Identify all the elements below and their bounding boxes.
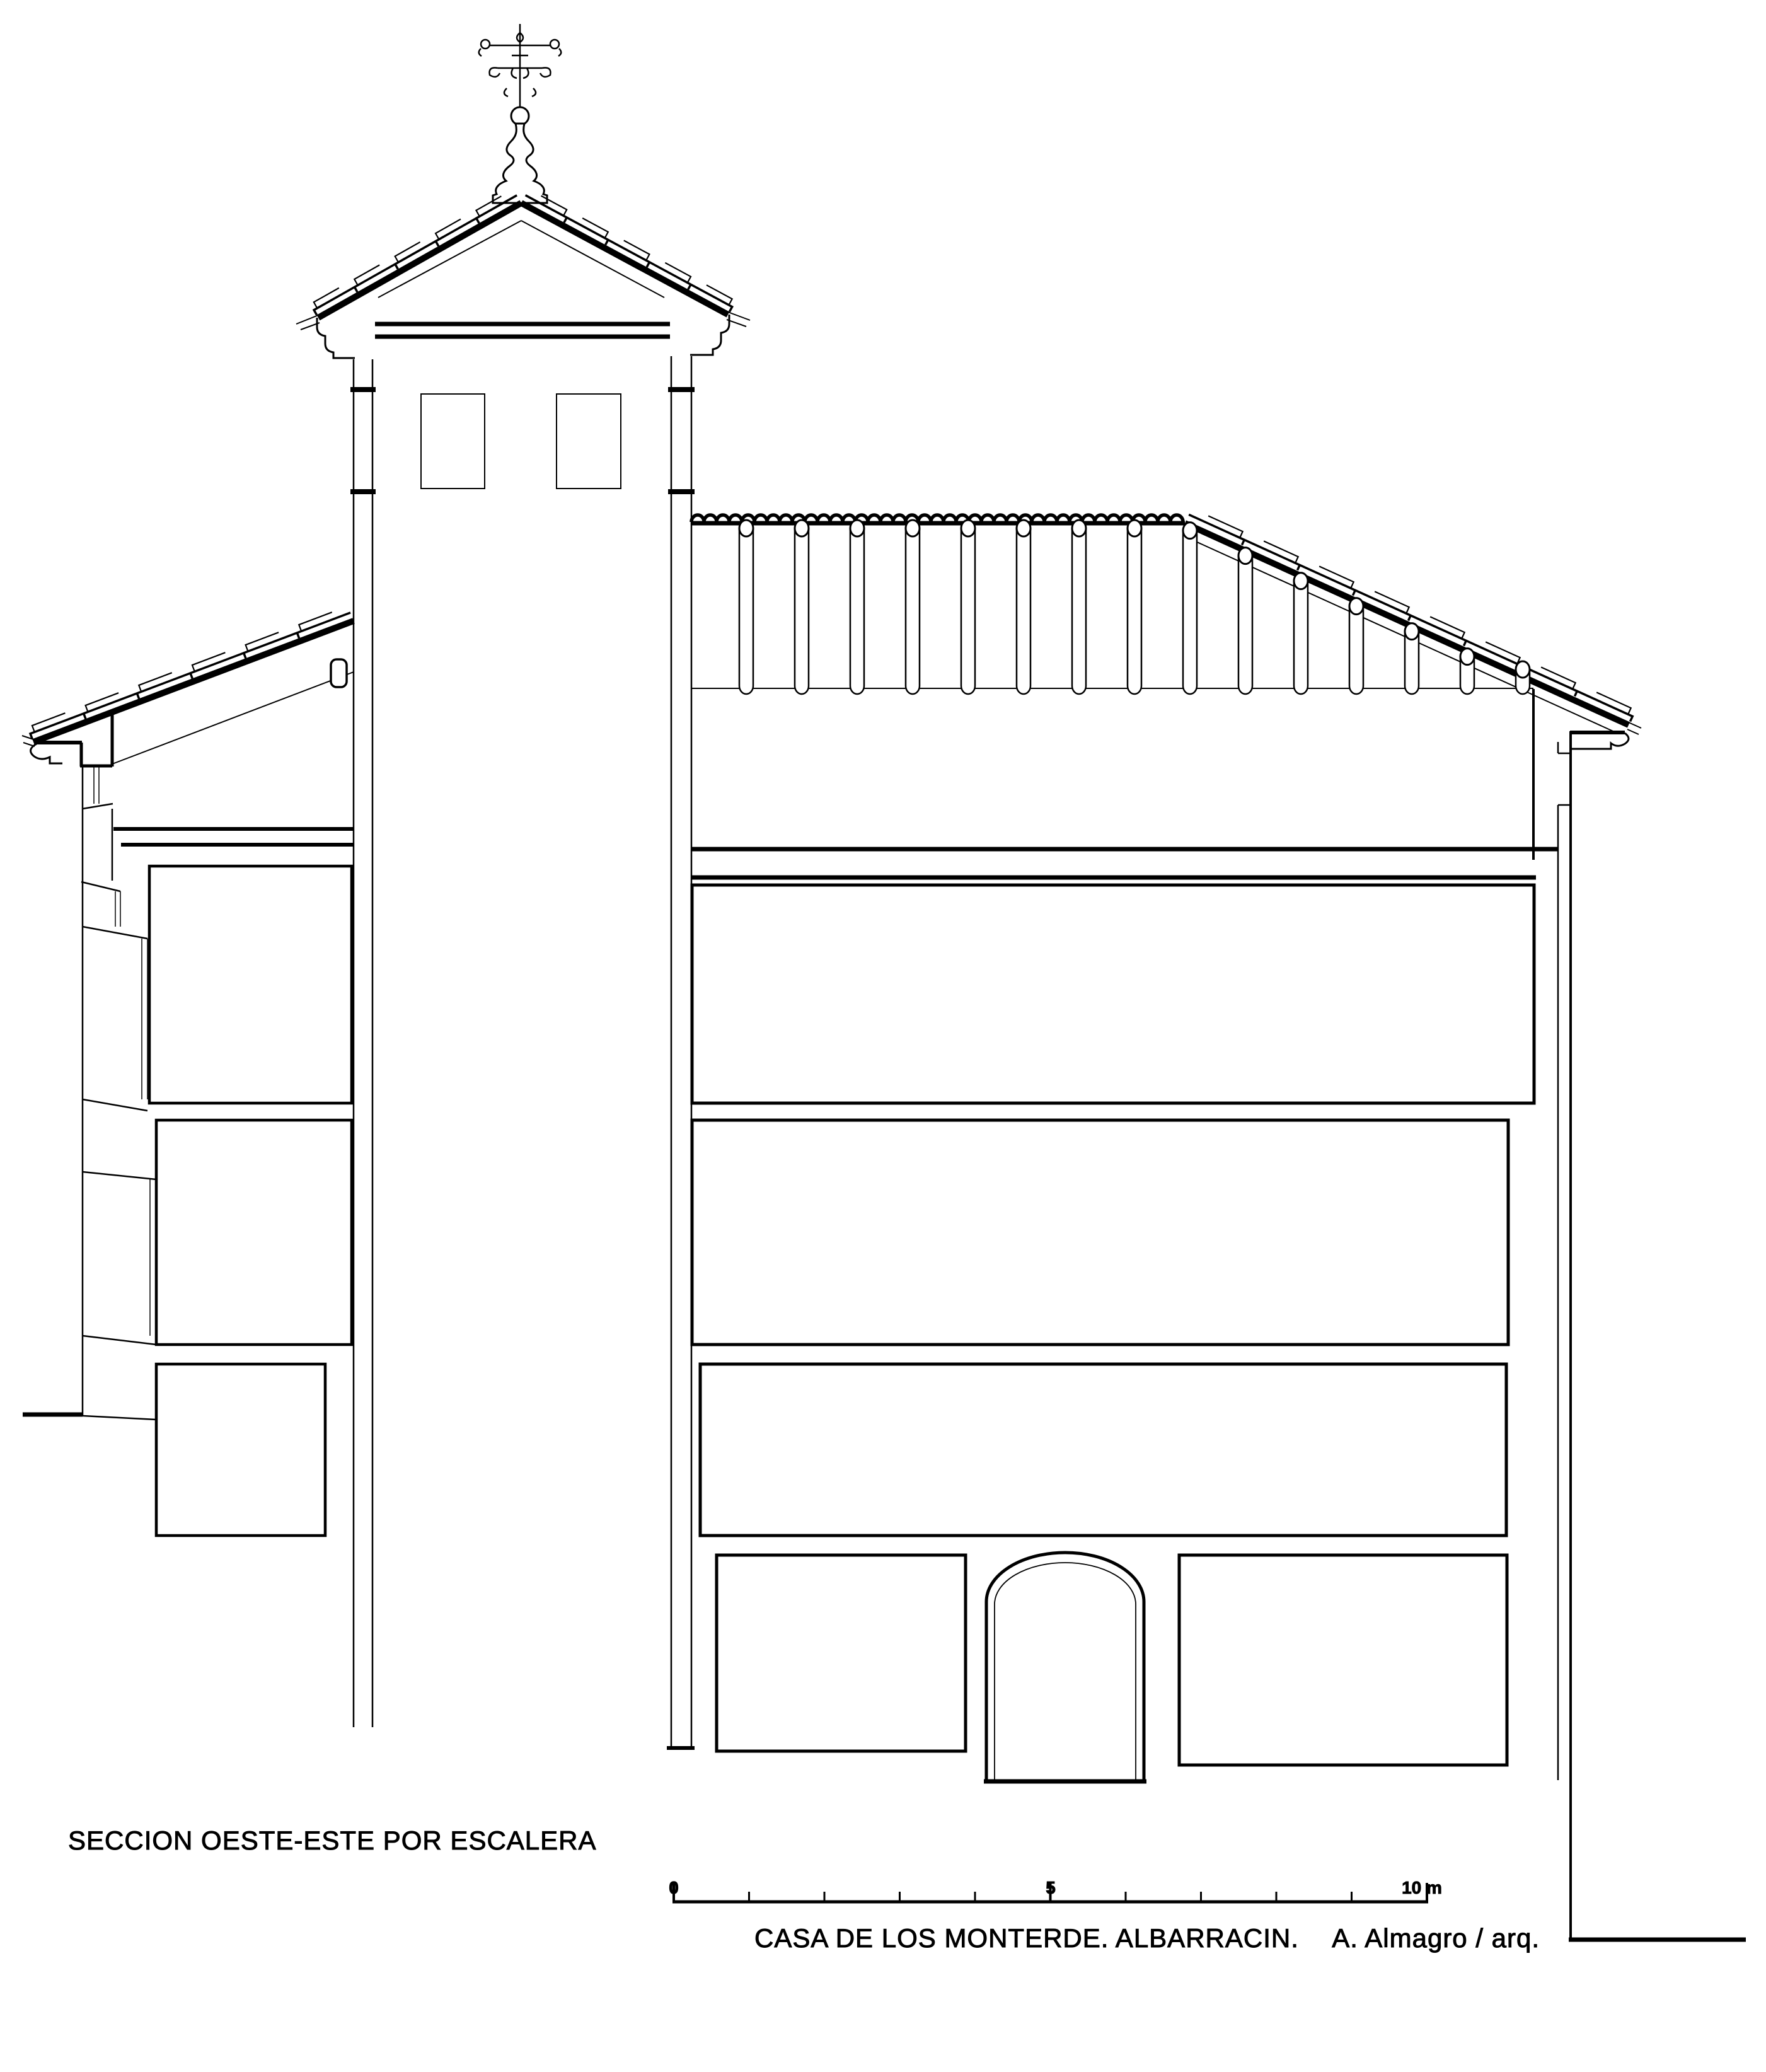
tower-roof-tiles-right bbox=[526, 195, 732, 312]
room-mezzanine bbox=[700, 1364, 1506, 1536]
main-building bbox=[691, 514, 1746, 1940]
left-facade-wall bbox=[81, 767, 156, 1420]
tower-window-left bbox=[421, 394, 485, 489]
roof-tile-crest bbox=[691, 515, 1183, 522]
lean-to-room-upper bbox=[149, 866, 352, 1103]
tower-cornice-left bbox=[317, 318, 355, 358]
drawing-sheet: SECCION OESTE-ESTE POR ESCALERA 0 5 10 m… bbox=[0, 0, 1766, 2072]
caption-project: CASA DE LOS MONTERDE. ALBARRACIN. bbox=[754, 1923, 1299, 1953]
section-drawing: SECCION OESTE-ESTE POR ESCALERA 0 5 10 m… bbox=[0, 0, 1766, 2072]
weathervane bbox=[479, 24, 562, 107]
ground-floor-left-recess bbox=[717, 1555, 966, 1751]
tower-finial bbox=[493, 107, 547, 203]
ground-floor bbox=[717, 1553, 1507, 1781]
rafter-logs bbox=[739, 520, 1530, 694]
right-wall-vent bbox=[1558, 753, 1571, 805]
scale-label-5: 5 bbox=[1046, 1878, 1056, 1897]
lean-to-ceiling-slab bbox=[113, 829, 354, 845]
window-reveals bbox=[94, 767, 156, 1336]
caption-author: A. Almagro / arq. bbox=[1332, 1923, 1540, 1953]
lean-to-room-middle bbox=[156, 1120, 352, 1345]
caption: CASA DE LOS MONTERDE. ALBARRACIN. A. Alm… bbox=[754, 1923, 1540, 1953]
lean-to-beam-end bbox=[331, 659, 347, 687]
drawing-title: SECCION OESTE-ESTE POR ESCALERA bbox=[68, 1826, 597, 1855]
tower bbox=[296, 24, 750, 1748]
right-wall bbox=[1558, 731, 1746, 1940]
tower-roof bbox=[296, 195, 750, 358]
scale-bar: 0 5 10 m bbox=[669, 1878, 1442, 1902]
tower-roof-tiles-left bbox=[314, 195, 517, 315]
tower-floor-bands bbox=[350, 390, 695, 492]
ground-floor-right-recess bbox=[1179, 1555, 1507, 1765]
room-first-floor bbox=[692, 1120, 1508, 1345]
lean-to-roof-tiles bbox=[30, 612, 350, 739]
lean-to-building bbox=[22, 612, 354, 1536]
tower-walls bbox=[350, 356, 695, 1748]
lean-to-rooms bbox=[149, 866, 352, 1536]
right-eave-cornice bbox=[1570, 732, 1629, 749]
tower-cornice-right bbox=[690, 315, 729, 355]
attic-floor-slab bbox=[691, 849, 1558, 877]
tower-window-right bbox=[557, 394, 621, 489]
room-second-floor bbox=[692, 885, 1534, 1103]
main-roof bbox=[691, 514, 1641, 734]
lean-to-room-lower bbox=[156, 1364, 325, 1536]
entrance-arch bbox=[986, 1553, 1144, 1780]
scale-label-0: 0 bbox=[669, 1878, 679, 1897]
scale-label-10m: 10 m bbox=[1402, 1878, 1442, 1897]
entrance-arch-inner bbox=[995, 1563, 1136, 1780]
main-rooms bbox=[692, 885, 1534, 1536]
